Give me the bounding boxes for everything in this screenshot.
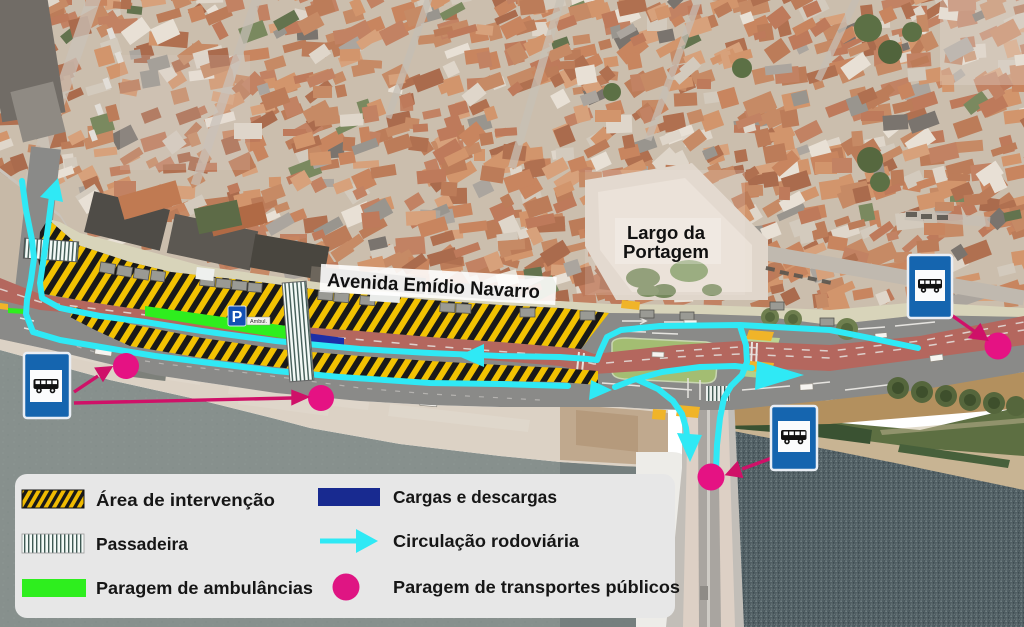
svg-text:Ambul.: Ambul. [250,319,268,325]
svg-text:Portagem: Portagem [623,242,709,262]
svg-text:Cargas e descargas: Cargas e descargas [393,487,557,507]
svg-text:P: P [232,309,243,326]
svg-text:Paragem de ambulâncias: Paragem de ambulâncias [96,578,313,598]
svg-text:Paragem de transportes público: Paragem de transportes públicos [393,577,680,597]
svg-text:Passadeira: Passadeira [96,534,188,554]
svg-text:Circulação rodoviária: Circulação rodoviária [393,531,579,551]
svg-text:Largo da: Largo da [627,223,706,243]
svg-text:Área de intervenção: Área de intervenção [96,489,275,510]
